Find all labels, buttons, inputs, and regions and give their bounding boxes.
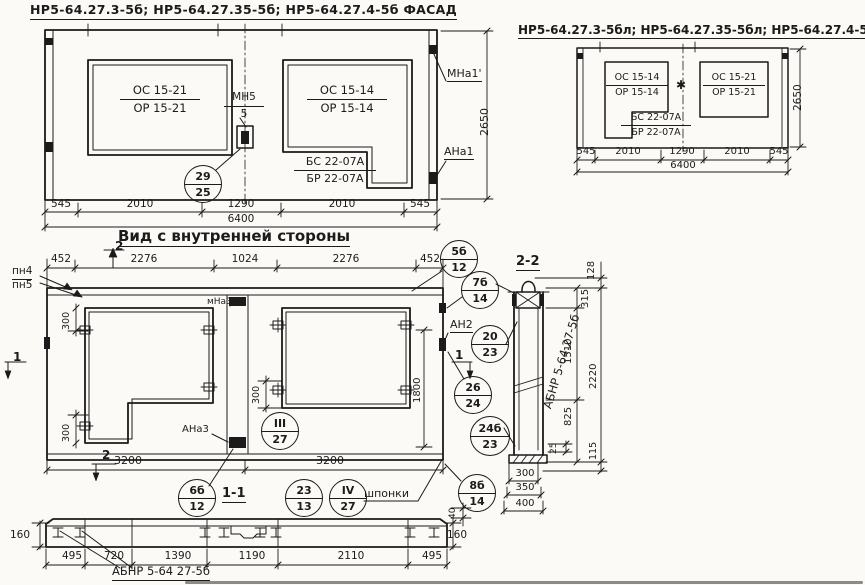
dim-label: 495 [55,551,89,562]
scan-smudge [185,581,863,584]
bs-code: БС 22-07А [294,156,376,171]
callout-bottom: 12 [179,499,215,517]
callout-29-25: 29 25 [184,165,222,203]
section-1-1-product-label: АБНР 5-64 27-5б [112,566,210,581]
dim-label: 1290 [664,147,700,157]
or-code: ОР 15-14 [307,100,387,115]
facade-right-height-dim: 2650 [793,72,804,124]
callout-26-24: 26 24 [454,376,492,414]
os-code: ОС 15-21 [120,84,200,100]
dim-label: 545 [403,199,437,210]
facade-left-step-label: БС 22-07А БР 22-07А [294,156,376,185]
section-2-2-title: 2-2 [516,255,540,271]
section-marker-1-left: 1 [13,351,21,363]
callout-bottom: 24 [455,396,491,414]
callout-8b-14: 8б 14 [458,474,496,512]
shponki-label: шпонки [364,488,409,499]
facade-left-window-left-label: ОС 15-21 ОР 15-21 [120,84,200,114]
callout-top: IV [330,480,366,499]
dim-128: 128 [587,258,597,282]
dim-1510: 1510 [564,330,574,372]
callout-bottom: 27 [262,432,298,450]
dim-label: 2010 [719,147,755,157]
dim-label: 2010 [610,147,646,157]
dim-total-label: 6400 [219,214,263,225]
section-1-1-title: 1-1 [222,487,246,503]
callout-bottom: 27 [330,499,366,517]
dim-label: 720 [97,551,131,562]
callout-top: 20 [472,326,508,345]
dim-label: 2110 [329,551,373,562]
dim-total-label: 6400 [663,161,703,171]
facade-left-mullion-label: МН5 5 [224,92,264,120]
dim-label: 545 [570,147,602,157]
callout-7b-14: 7б 14 [461,271,499,309]
dim-label: 1190 [230,551,274,562]
or-code: ОР 15-21 [703,86,765,98]
callout-top: 8б [459,475,495,494]
dim-label: 1024 [223,254,267,265]
dim-label: 545 [763,147,795,157]
dim-label: 452 [44,254,78,265]
facade-right-window-left-label: ОС 15-14 ОР 15-14 [606,73,668,99]
dim-label: 1290 [219,199,263,210]
callout-top: 7б [462,272,498,291]
dim-2220: 2220 [589,352,599,400]
dim-label: 2276 [324,254,368,265]
callout-bottom: 23 [471,437,509,456]
callout-top: III [262,413,298,432]
dim-160-right: 160 [447,530,467,541]
facade-left-title: НР5-64.27.3-5б; НР5-64.27.35-5б; НР5-64.… [30,4,457,20]
callout-bottom: 23 [472,345,508,363]
bs-code: БС 22-07А [621,113,691,126]
facade-left-window-right-label: ОС 15-14 ОР 15-14 [307,84,387,114]
callout-bottom: 14 [462,291,498,309]
section-marker-1-right: 1 [455,349,463,361]
callout-top: 23 [286,480,322,499]
mn-code: МН5 [224,92,264,107]
dim-width-350: 350 [508,483,542,493]
dim-label: 1390 [156,551,200,562]
facade-right-title: НР5-64.27.3-5бл; НР5-64.27.35-5бл; НР5-6… [518,24,865,39]
dim-width-400: 400 [508,499,542,509]
callout-iii-27: III 27 [261,412,299,450]
callout-top: 26 [455,377,491,396]
dim-3200-left: 3200 [106,455,150,466]
dim-115: 115 [589,438,599,464]
dim-3200-right: 3200 [308,455,352,466]
dim-40: 40 [449,503,458,523]
dim-825: 825 [564,400,574,432]
callout-24b-23: 24б 23 [470,416,510,456]
dim-label: 2010 [320,199,364,210]
os-code: ОС 15-14 [307,84,387,100]
mark-mna3: мНа3 [207,298,232,307]
callout-23-13: 23 13 [285,479,323,517]
dim-300-top-left: 300 [62,305,72,337]
star-mark: ✱ [676,79,686,91]
callout-top: 24б [471,417,509,437]
mark-pn4: пн4 [12,266,32,280]
callout-iv-27: IV 27 [329,479,367,517]
os-code: ОС 15-14 [606,73,668,86]
dim-label: 495 [415,551,449,562]
callout-20-23: 20 23 [471,325,509,363]
facade-right-step-label: БС 22-07А БР 22-07А [621,113,691,139]
dim-label: 2276 [122,254,166,265]
dim-1800: 1800 [413,368,423,412]
dim-300-right-window: 300 [252,379,262,411]
br-code: БР 22-07А [621,126,691,138]
callout-bottom: 25 [185,185,221,203]
facade-left-height-dim: 2650 [479,96,490,148]
dim-25: 25 [550,440,559,456]
drawing-sheet: НР5-64.27.3-5б; НР5-64.27.35-5б; НР5-64.… [0,0,865,585]
mark-ana3: АНа3 [182,425,209,435]
dim-label: 545 [44,199,78,210]
or-code: ОР 15-21 [120,100,200,115]
or-code: ОР 15-14 [606,86,668,98]
facade-right-window-right-label: ОС 15-21 ОР 15-21 [703,73,765,99]
callout-bottom: 14 [459,494,495,512]
dim-300-bottom-left: 300 [62,416,72,450]
callout-top: 5б [441,241,477,260]
callout-top: 6б [179,480,215,499]
mark-mna1: МНа1' [447,68,482,82]
callout-top: 29 [185,166,221,185]
section-marker-2-top: 2 [115,240,123,252]
os-code: ОС 15-21 [703,73,765,86]
mark-ana1: АНа1 [444,146,474,160]
inner-view-title: Вид с внутренней стороны [118,229,350,247]
dim-160-left: 160 [10,530,30,541]
mn-num: 5 [224,107,264,121]
callout-bottom: 13 [286,499,322,517]
dim-label: 2010 [118,199,162,210]
br-code: БР 22-07А [294,171,376,185]
callout-6b-12: 6б 12 [178,479,216,517]
dim-width-300: 300 [508,469,542,479]
dim-315: 315 [581,286,591,310]
mark-pn5: пн5 [12,280,32,291]
mark-an2: АН2 [450,319,473,333]
